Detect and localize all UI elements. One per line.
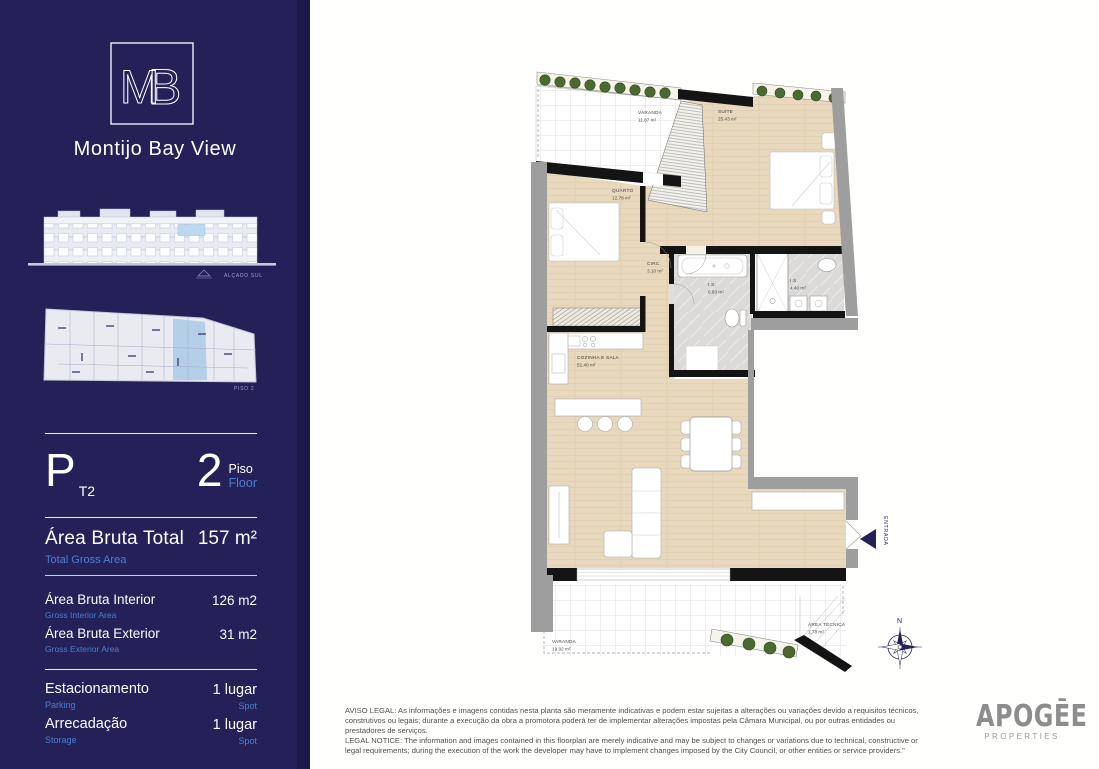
storage-label-en: Storage (45, 735, 257, 745)
parking-label-en: Parking (45, 700, 257, 710)
toilet1 (725, 309, 746, 327)
floor-label-pt: Piso (229, 462, 257, 476)
brochure-page: M B Montijo Bay View (0, 0, 1099, 769)
keyplan-caption: PISO 2 (234, 386, 254, 392)
room-label-is1: I.S. (708, 282, 716, 287)
room-label-varanda-top: VARANDA (638, 110, 663, 115)
logo-letter-b: B (148, 59, 181, 115)
brand-logo: M B (107, 40, 197, 128)
agency-logo: APOGĒE PROPERTIES (972, 699, 1072, 741)
parking-value: 1 lugar (213, 682, 257, 698)
sidebar: M B Montijo Bay View (0, 0, 310, 769)
total-area-row: Área Bruta Total 157 m² Total Gross Area (45, 528, 257, 566)
total-area-value: 157 m² (198, 528, 257, 550)
divider (45, 517, 257, 518)
unit-type-letter: P (45, 444, 76, 496)
room-label-suite: SUITE (718, 109, 733, 114)
highlighted-unit-keyplan (173, 319, 207, 381)
exterior-area-value: 31 m2 (219, 627, 257, 642)
total-area-label-en: Total Gross Area (45, 554, 257, 566)
room-area-is1: 6.83 m² (708, 290, 724, 295)
room-label-cozinha: COZINHA E SALA (577, 355, 620, 360)
room-area-is2: 4.40 m² (790, 286, 806, 291)
mb-monogram-icon: M B (107, 40, 197, 128)
storage-value: 1 lugar (213, 717, 257, 733)
developer-stamp-icon (198, 270, 210, 276)
exterior-area-label-en: Gross Exterior Area (45, 644, 257, 654)
compass-rose-icon: N (878, 618, 922, 669)
parking-row: Estacionamento 1 lugar Parking Spot (45, 681, 257, 710)
divider (45, 575, 257, 576)
divider (45, 669, 257, 670)
room-area-cozinha: 51.40 m² (577, 363, 596, 368)
sidebar-edge-strip (297, 0, 310, 769)
room-area-quarto: 12.78 m² (612, 196, 631, 201)
room-area-suite: 25.43 m² (718, 117, 737, 122)
interior-area-label-en: Gross Interior Area (45, 610, 257, 620)
shower (757, 253, 788, 313)
entrance-arrow-icon (860, 529, 876, 549)
unit-summary: PT2 2PisoFloor (45, 443, 257, 509)
room-area-varanda-top: 11.87 m² (638, 118, 657, 123)
room-label-quarto: QUARTO (612, 188, 633, 193)
highlighted-unit-elevation (178, 225, 205, 236)
floorplan-drawing: ENTRADA N VARANDA 11.87 m² SUITE 25.43 m… (515, 50, 965, 680)
room-area-circ: 3.10 m² (647, 269, 663, 274)
toilet2 (818, 259, 836, 272)
interior-area-row: Área Bruta Interior 126 m2 Gross Interio… (45, 592, 257, 620)
room-area-varanda-bottom: 19.92 m² (552, 647, 571, 652)
floor-key-plan-image: PISO 2 (28, 298, 276, 394)
parking-value-en: Spot (238, 701, 257, 711)
entrance-label: ENTRADA (882, 516, 888, 546)
room-label-varanda-bottom: VARANDA (552, 639, 577, 644)
terrace-bottom-floor (542, 584, 846, 656)
exterior-area-row: Área Bruta Exterior 31 m2 Gross Exterior… (45, 626, 257, 654)
sideboard-left (549, 486, 569, 544)
quarto-bed (549, 203, 619, 261)
agency-name: APOGĒE (976, 699, 1068, 734)
interior-area-value: 126 m2 (212, 593, 257, 608)
room-label-is2: I.S. (790, 278, 798, 283)
storage-row: Arrecadação 1 lugar Storage Spot (45, 716, 257, 745)
dining-set (681, 417, 741, 471)
storage-value-en: Spot (238, 736, 257, 746)
compass-north-label: N (897, 618, 902, 625)
unit-typology: T2 (79, 483, 95, 499)
bath-mat (686, 346, 718, 372)
floor-label-en: Floor (229, 476, 257, 490)
wardrobe (553, 308, 643, 326)
entry-swing (846, 521, 861, 549)
building-elevation-image: ALÇADO SUL (28, 203, 276, 285)
floor-number: 2 (197, 444, 223, 496)
legal-notice-pt: AVISO LEGAL: As informações e imagens co… (345, 706, 933, 736)
legal-notice-en: LEGAL NOTICE: The information and images… (345, 736, 933, 756)
sideboard-right (752, 492, 844, 510)
living-window (577, 569, 730, 580)
room-area-area-tecnica: 1.78 m² (808, 630, 824, 635)
elevation-caption: ALÇADO SUL (224, 273, 263, 279)
room-label-area-tecnica: ÁREA TÉCNICA (808, 621, 846, 627)
room-label-circ: CIRC. (647, 261, 661, 266)
project-name: Montijo Bay View (0, 138, 310, 161)
legal-notice: AVISO LEGAL: As informações e imagens co… (345, 706, 933, 756)
divider (45, 433, 257, 434)
